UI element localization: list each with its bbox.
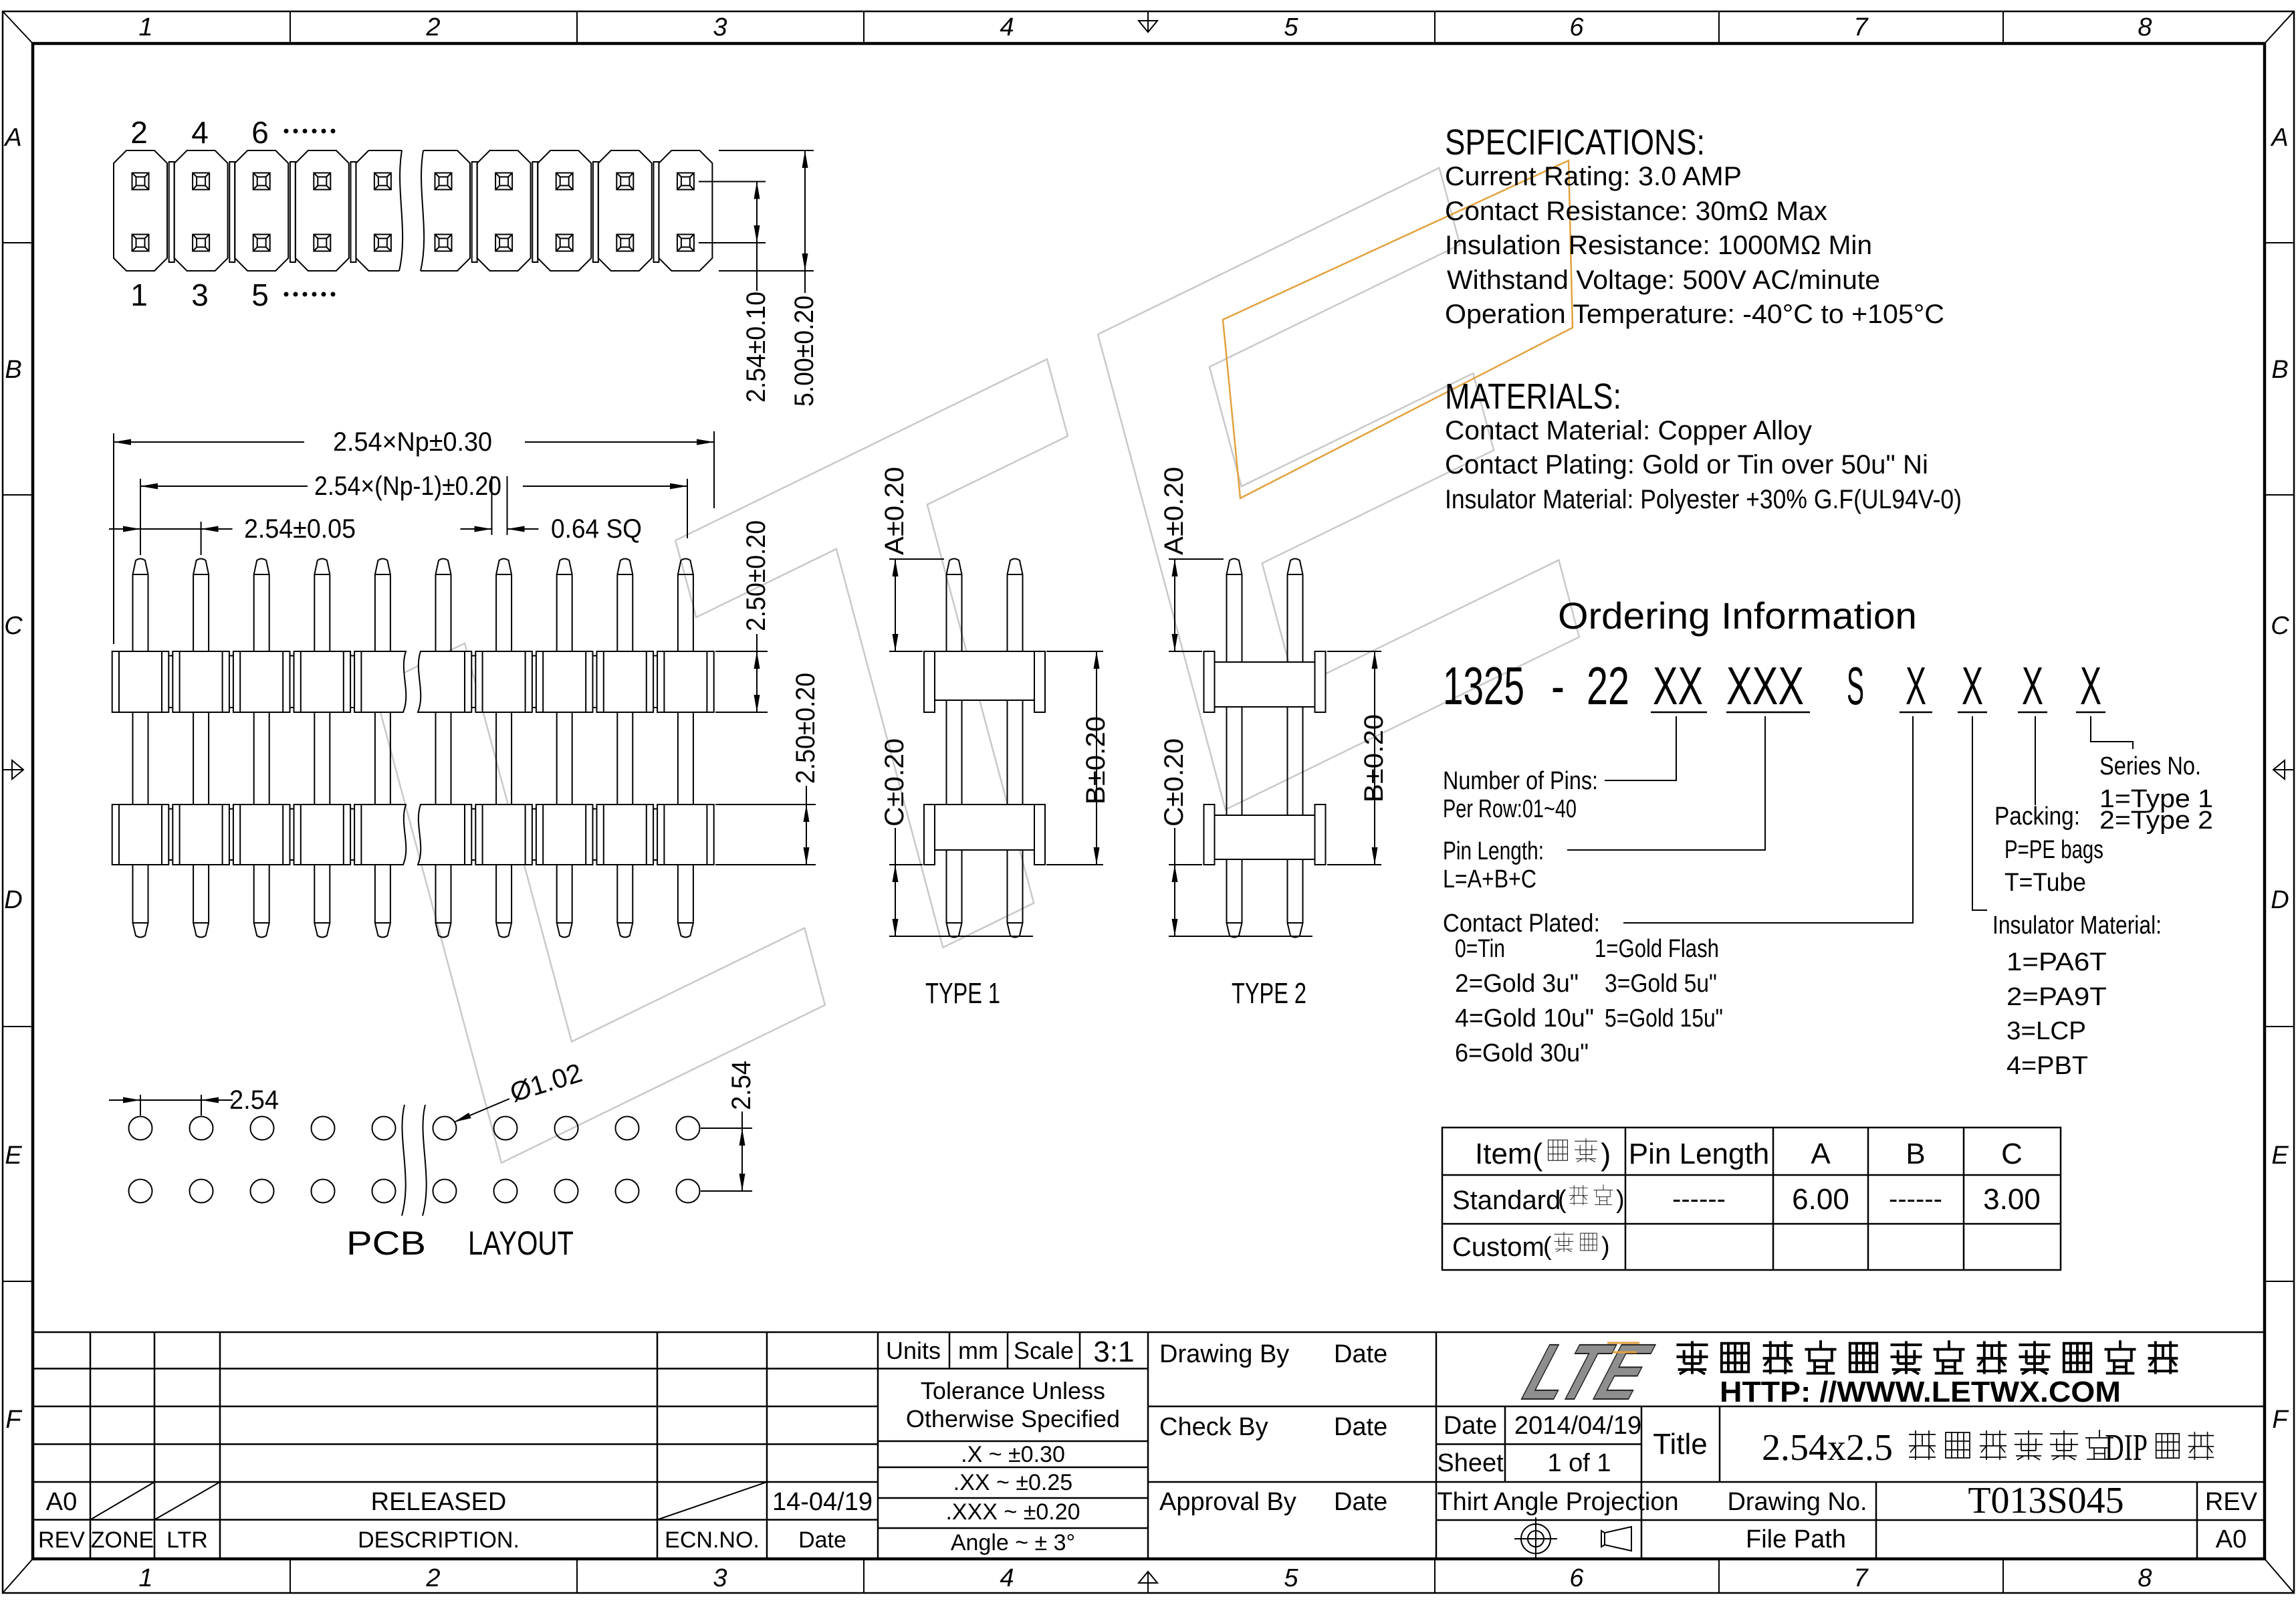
svg-text:A: A (3, 124, 21, 152)
svg-text:6=Gold 30u": 6=Gold 30u" (1455, 1039, 1589, 1067)
svg-text:Insulator Material: Polyester: Insulator Material: Polyester +30% G.F(U… (1445, 485, 1962, 514)
svg-text:7: 7 (1853, 13, 1869, 41)
svg-text:TYPE 1: TYPE 1 (925, 977, 1000, 1010)
svg-text:C±0.20: C±0.20 (880, 738, 909, 827)
svg-text:Tolerance Unless: Tolerance Unless (921, 1377, 1105, 1404)
svg-text:-: - (1551, 656, 1565, 716)
svg-text:2.54±0.05: 2.54±0.05 (244, 514, 356, 544)
svg-text:Series No.: Series No. (2099, 752, 2201, 780)
svg-text:X: X (1962, 656, 1983, 716)
svg-text:DIP: DIP (2105, 1427, 2148, 1469)
svg-text:Contact Material: Copper Alloy: Contact Material: Copper Alloy (1445, 416, 1812, 445)
svg-text:Title: Title (1653, 1428, 1708, 1461)
svg-text:4: 4 (1000, 13, 1014, 41)
svg-text:Date: Date (1334, 1413, 1387, 1441)
svg-text:(: ( (1543, 1233, 1552, 1261)
svg-text:Number of Pins:: Number of Pins: (1443, 767, 1598, 795)
svg-text:1 of 1: 1 of 1 (1547, 1449, 1611, 1477)
svg-text:Insulation Resistance: 1000MΩ: Insulation Resistance: 1000MΩ Min (1445, 231, 1872, 260)
svg-text:ECN.NO.: ECN.NO. (665, 1527, 760, 1553)
svg-text:3.00: 3.00 (1983, 1183, 2041, 1216)
svg-text:B: B (1906, 1138, 1925, 1170)
svg-text:Drawing No.: Drawing No. (1727, 1488, 1867, 1516)
svg-text:): ) (1601, 1137, 1611, 1172)
svg-text:1=Gold Flash: 1=Gold Flash (1595, 935, 1719, 963)
svg-text:------: ------ (1672, 1184, 1726, 1214)
svg-text:5.00±0.20: 5.00±0.20 (790, 296, 819, 407)
svg-text:.XXX ~ ±0.20: .XXX ~ ±0.20 (945, 1499, 1080, 1525)
svg-text:(: ( (1558, 1186, 1567, 1214)
svg-text:4: 4 (1000, 1564, 1014, 1592)
svg-text:2=Gold 3u": 2=Gold 3u" (1455, 970, 1579, 998)
svg-text:2.54×Np±0.30: 2.54×Np±0.30 (333, 427, 492, 457)
svg-text:Otherwise Specified: Otherwise Specified (906, 1405, 1120, 1432)
svg-text:): ) (1616, 1186, 1625, 1214)
svg-text:Contact Plating: Gold or Tin o: Contact Plating: Gold or Tin over 50u" N… (1445, 450, 1928, 479)
svg-text:Packing:: Packing: (1994, 802, 2080, 831)
svg-text:3=Gold 5u": 3=Gold 5u" (1605, 970, 1717, 998)
svg-text:Contact Resistance: 30mΩ Max: Contact Resistance: 30mΩ Max (1445, 197, 1827, 226)
svg-text:C±0.20: C±0.20 (1159, 738, 1189, 827)
svg-text:E: E (5, 1142, 22, 1170)
svg-text:2: 2 (130, 115, 148, 150)
svg-text:F: F (2272, 1406, 2289, 1434)
svg-text:D: D (4, 886, 22, 914)
svg-text:4=PBT: 4=PBT (2006, 1052, 2088, 1080)
svg-text:E: E (2271, 1142, 2289, 1170)
svg-text:Pin Length: Pin Length (1629, 1138, 1769, 1170)
svg-text:4=Gold 10u": 4=Gold 10u" (1455, 1004, 1594, 1033)
svg-text:Standard: Standard (1452, 1186, 1561, 1215)
svg-text:1: 1 (138, 13, 152, 41)
svg-text:File Path: File Path (1746, 1525, 1846, 1554)
svg-text:2.54±0.10: 2.54±0.10 (741, 292, 771, 403)
svg-text:Approval By: Approval By (1159, 1488, 1296, 1516)
svg-text:T013S045: T013S045 (1968, 1480, 2123, 1521)
svg-text:REV: REV (2205, 1488, 2258, 1516)
svg-text:Pin Length:: Pin Length: (1443, 837, 1544, 865)
svg-text:HTTP: //WWW.LETWX.COM: HTTP: //WWW.LETWX.COM (1720, 1376, 2121, 1408)
svg-text:2.54×(Np-1)±0.20: 2.54×(Np-1)±0.20 (314, 471, 501, 501)
svg-text:RELEASED: RELEASED (371, 1488, 507, 1516)
svg-text:A: A (1811, 1138, 1831, 1170)
svg-text:2=PA9T: 2=PA9T (2006, 983, 2107, 1011)
svg-text:5: 5 (1284, 13, 1298, 41)
svg-text:Scale: Scale (1014, 1337, 1074, 1364)
svg-text:7: 7 (1853, 1564, 1869, 1592)
svg-text:XX: XX (1653, 656, 1703, 716)
svg-text:4: 4 (191, 115, 209, 150)
svg-text:3: 3 (191, 278, 209, 312)
svg-text:Ordering Information: Ordering Information (1558, 595, 1917, 637)
svg-text:2014/04/19: 2014/04/19 (1514, 1412, 1641, 1440)
svg-text:Units: Units (886, 1337, 941, 1364)
svg-text:2.54: 2.54 (727, 1061, 756, 1110)
svg-text:2.54x2.5: 2.54x2.5 (1762, 1427, 1893, 1469)
svg-text:MATERIALS:: MATERIALS: (1445, 377, 1621, 417)
svg-text:T=Tube: T=Tube (2004, 869, 2086, 897)
svg-text:1=PA6T: 1=PA6T (2006, 948, 2107, 976)
svg-text:Thirt Angle Projection: Thirt Angle Projection (1437, 1488, 1678, 1516)
svg-text:LTR: LTR (166, 1527, 208, 1553)
svg-text:X: X (1906, 656, 1926, 716)
svg-text:C: C (2001, 1138, 2023, 1170)
svg-text:2.54: 2.54 (229, 1085, 279, 1115)
svg-text:5: 5 (251, 278, 269, 312)
svg-text:2.50±0.20: 2.50±0.20 (741, 520, 771, 631)
svg-text:Withstand Voltage: 500V AC/min: Withstand Voltage: 500V AC/minute (1447, 265, 1880, 295)
svg-text:8: 8 (2138, 1564, 2152, 1592)
svg-text:B: B (5, 356, 21, 384)
svg-text:A: A (2270, 124, 2288, 152)
svg-text:Custom: Custom (1452, 1233, 1544, 1262)
svg-text:8: 8 (2138, 13, 2152, 41)
svg-text:REV: REV (38, 1527, 85, 1553)
svg-text:ZONE: ZONE (91, 1527, 154, 1553)
svg-text:.XX ~ ±0.25: .XX ~ ±0.25 (953, 1470, 1072, 1495)
svg-text:.X ~ ±0.30: .X ~ ±0.30 (961, 1442, 1065, 1467)
svg-text:Check By: Check By (1159, 1413, 1268, 1441)
svg-text:mm: mm (958, 1337, 998, 1364)
svg-text:2: 2 (425, 13, 440, 41)
svg-text:Sheet: Sheet (1437, 1449, 1504, 1477)
svg-text:F: F (5, 1406, 22, 1434)
svg-text:C: C (2271, 612, 2289, 640)
svg-text:1: 1 (138, 1564, 152, 1592)
svg-text:2.50±0.20: 2.50±0.20 (791, 673, 820, 784)
svg-text:B±0.20: B±0.20 (1081, 716, 1111, 805)
svg-text:Operation Temperature: -40°C t: Operation Temperature: -40°C to +105°C (1445, 300, 1944, 329)
svg-text:A±0.20: A±0.20 (1159, 467, 1189, 555)
svg-text:Angle ~ ± 3°: Angle ~ ± 3° (951, 1530, 1075, 1556)
svg-text:PCB: PCB (346, 1224, 426, 1262)
svg-text:A0: A0 (2216, 1525, 2247, 1554)
svg-text:------: ------ (1889, 1184, 1942, 1214)
svg-text:Per Row:01~40: Per Row:01~40 (1443, 795, 1577, 823)
svg-text:Date: Date (1334, 1488, 1387, 1516)
svg-text:D: D (2271, 886, 2289, 914)
svg-text:3: 3 (713, 1564, 727, 1592)
svg-text:1: 1 (130, 278, 148, 312)
svg-text:A±0.20: A±0.20 (880, 467, 909, 555)
svg-text:Date: Date (1444, 1412, 1497, 1440)
svg-text:Insulator Material:: Insulator Material: (1992, 912, 2162, 940)
svg-text:14-04/19: 14-04/19 (772, 1488, 873, 1516)
svg-text:1325: 1325 (1443, 656, 1524, 716)
svg-text:Contact Plated:: Contact Plated: (1443, 909, 1600, 938)
svg-text:2=Type 2: 2=Type 2 (2099, 807, 2213, 835)
svg-text:A0: A0 (46, 1488, 77, 1516)
svg-text:X: X (2022, 656, 2043, 716)
svg-text:(: ( (1532, 1137, 1543, 1172)
svg-text:L=A+B+C: L=A+B+C (1443, 865, 1536, 893)
svg-text:2: 2 (425, 1564, 440, 1592)
svg-text:6: 6 (1569, 13, 1584, 41)
svg-text:Date: Date (1334, 1340, 1387, 1368)
svg-text:C: C (4, 612, 23, 640)
svg-text:Current Rating: 3.0 AMP: Current Rating: 3.0 AMP (1445, 162, 1742, 191)
svg-text:6: 6 (1569, 1564, 1584, 1592)
svg-text:): ) (1601, 1233, 1610, 1261)
svg-text:XXX: XXX (1726, 656, 1804, 716)
svg-text:S: S (1847, 656, 1864, 716)
svg-text:Item: Item (1475, 1138, 1532, 1170)
svg-text:6: 6 (251, 115, 269, 150)
svg-text:0=Tin: 0=Tin (1455, 935, 1505, 963)
svg-text:3:1: 3:1 (1093, 1335, 1134, 1368)
svg-text:LAYOUT: LAYOUT (468, 1224, 574, 1262)
svg-text:22: 22 (1587, 656, 1629, 716)
svg-text:X: X (2080, 656, 2101, 716)
svg-text:3: 3 (713, 13, 727, 41)
svg-text:3=LCP: 3=LCP (2006, 1017, 2086, 1045)
svg-text:TYPE 2: TYPE 2 (1232, 977, 1306, 1010)
svg-text:5: 5 (1284, 1564, 1298, 1592)
svg-text:Drawing By: Drawing By (1159, 1340, 1289, 1368)
svg-text:SPECIFICATIONS:: SPECIFICATIONS: (1445, 122, 1705, 163)
svg-text:P=PE bags: P=PE bags (2004, 836, 2103, 864)
svg-text:0.64 SQ: 0.64 SQ (551, 514, 642, 544)
svg-text:B: B (2271, 356, 2288, 384)
svg-text:B±0.20: B±0.20 (1359, 714, 1389, 802)
svg-text:Date: Date (798, 1527, 846, 1553)
svg-text:6.00: 6.00 (1792, 1183, 1849, 1216)
svg-text:DESCRIPTION.: DESCRIPTION. (358, 1527, 520, 1553)
svg-text:5=Gold 15u": 5=Gold 15u" (1605, 1004, 1723, 1033)
